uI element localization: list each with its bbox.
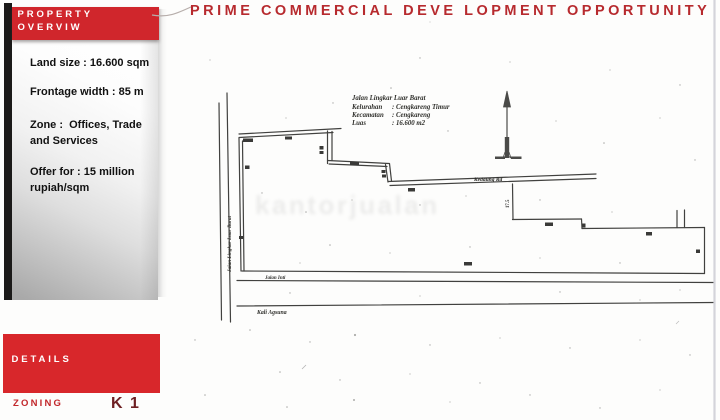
svg-text:: 16.600 m2: : 16.600 m2 <box>392 120 426 127</box>
svg-text:Kedaung Rd: Kedaung Rd <box>473 177 503 183</box>
svg-text:Jalan Lingkar Luar Barat: Jalan Lingkar Luar Barat <box>351 95 427 102</box>
svg-text:kantorjualan: kantorjualan <box>255 190 440 220</box>
svg-text:Luas: Luas <box>351 120 366 127</box>
svg-text:Kali Agsuna: Kali Agsuna <box>256 310 287 316</box>
svg-text:Kelurahan: Kelurahan <box>351 104 382 111</box>
svg-text:Kecamatan: Kecamatan <box>351 112 384 119</box>
svg-text:: Cengkareng: : Cengkareng <box>392 112 431 119</box>
svg-text:17.5: 17.5 <box>506 199 511 208</box>
svg-text:: Cengkareng Timur: : Cengkareng Timur <box>392 104 450 111</box>
svg-text:Jalan Inti: Jalan Inti <box>264 276 286 281</box>
svg-text:Jalan Lingkar Luar Barat: Jalan Lingkar Luar Barat <box>227 215 233 273</box>
